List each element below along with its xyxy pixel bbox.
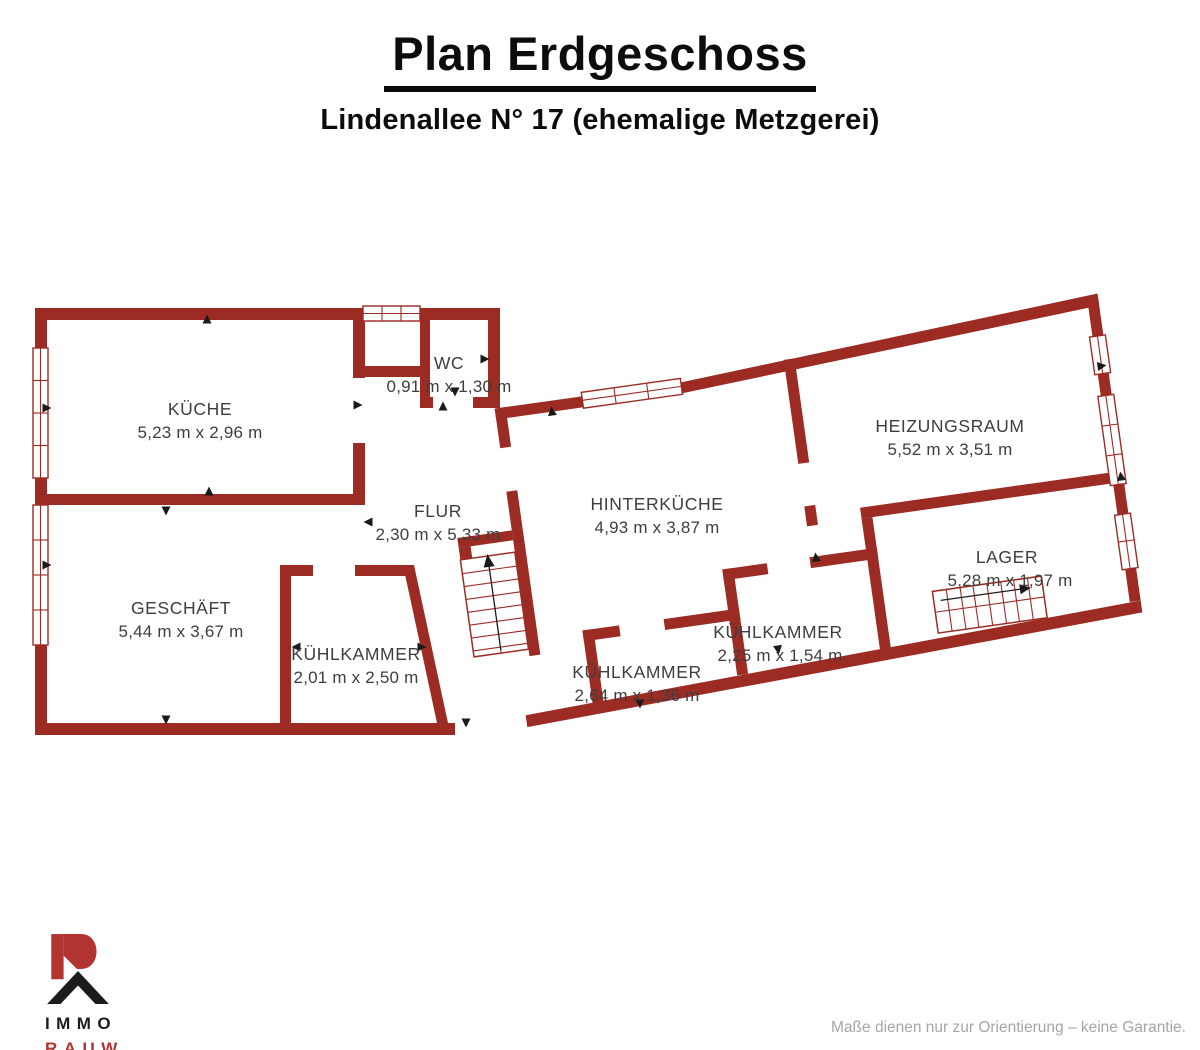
right-building-wing: [436, 293, 1148, 733]
immo-rauw-logo-icon: [47, 932, 109, 1006]
disclaimer-text: Maße dienen nur zur Orientierung – keine…: [831, 1019, 1186, 1037]
room-dims-kuehlkammer-mitte: 2,64 m x 1,36 m: [575, 686, 700, 705]
room-label-kuehlkammer-links: KÜHLKAMMER: [291, 644, 421, 664]
room-dims-geschaeft: 5,44 m x 3,67 m: [119, 622, 244, 641]
room-label-wc: WC: [434, 353, 464, 373]
room-dims-hinterkueche: 4,93 m x 3,87 m: [595, 518, 720, 537]
room-dims-wc: 0,91 m x 1,30 m: [387, 377, 512, 396]
room-label-kuehlkammer-mitte: KÜHLKAMMER: [572, 662, 702, 682]
room-label-flur: FLUR: [414, 501, 462, 521]
window: [1098, 394, 1126, 485]
window: [363, 306, 420, 321]
logo-text-immo: IMMO: [45, 1014, 225, 1034]
room-dims-heizungsraum: 5,52 m x 3,51 m: [888, 440, 1013, 459]
room-label-lager: LAGER: [976, 547, 1038, 567]
logo-text-rauw: RAUW: [45, 1039, 225, 1050]
room-label-geschaeft: GESCHÄFT: [131, 598, 231, 618]
room-dims-kuehlkammer-rechts: 2,25 m x 1,54 m: [718, 646, 843, 665]
window: [33, 348, 48, 478]
room-label-heizungsraum: HEIZUNGSRAUM: [875, 416, 1024, 436]
room-label-kuehlkammer-rechts: KÜHLKAMMER: [713, 622, 843, 642]
room-dims-lager: 5,28 m x 1,97 m: [948, 571, 1073, 590]
immo-rauw-logo: IMMO RAUW: [45, 932, 225, 1050]
window: [1115, 513, 1138, 570]
room-dims-kueche: 5,23 m x 2,96 m: [138, 423, 263, 442]
room-label-kueche: KÜCHE: [168, 399, 232, 419]
room-dims-kuehlkammer-links: 2,01 m x 2,50 m: [294, 668, 419, 687]
floorplan-page: Plan Erdgeschoss Lindenallee N° 17 (ehem…: [0, 0, 1200, 1050]
window: [581, 378, 682, 408]
window: [33, 505, 48, 645]
room-dims-flur: 2,30 m x 5,33 m: [376, 525, 501, 544]
floorplan-drawing: KÜCHE 5,23 m x 2,96 m WC 0,91 m x 1,30 m…: [0, 0, 1200, 1050]
room-label-hinterkueche: HINTERKÜCHE: [591, 494, 724, 514]
